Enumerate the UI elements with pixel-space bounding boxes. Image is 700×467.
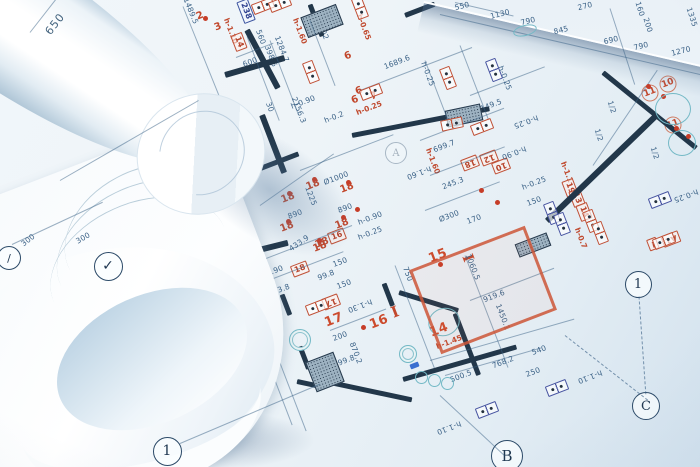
dimension-text: 650 <box>42 11 67 38</box>
dimension-line <box>60 100 199 181</box>
dimension-text: 300 <box>74 230 91 245</box>
dimension-line <box>180 384 320 444</box>
grid-marker-circle: 1 <box>153 437 182 466</box>
foreground-annotations: 6503003001✓/ <box>0 0 700 467</box>
grid-marker-circle: ✓ <box>94 252 123 281</box>
grid-marker-circle: / <box>0 246 21 270</box>
blueprint-photo: 1489.523h-1.1023814600560398.61284.7h-1.… <box>0 0 700 467</box>
